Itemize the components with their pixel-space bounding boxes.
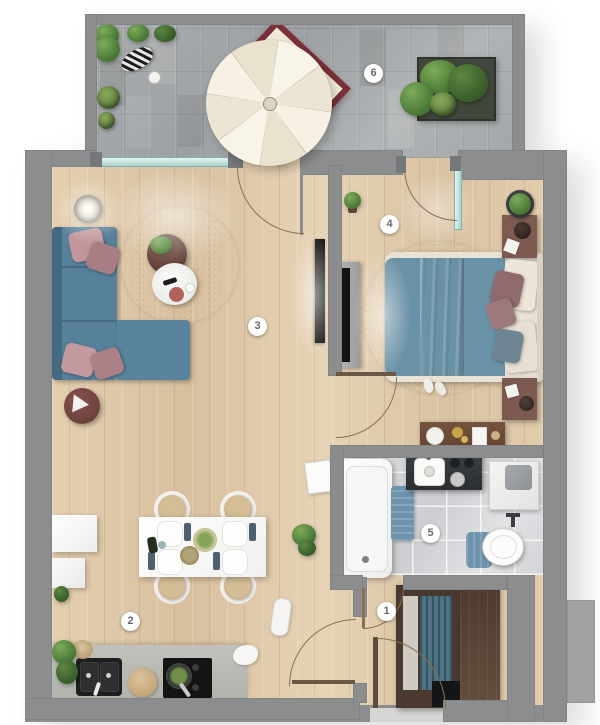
room-label-terrace: 6 (364, 64, 383, 83)
burner (192, 684, 199, 691)
sink-drain (86, 673, 91, 678)
decor-ball (148, 71, 161, 84)
planter-foliage (400, 82, 434, 116)
white-cabinet (52, 515, 97, 552)
wall-bottom-right-stub (443, 700, 510, 722)
floor-lamp (74, 195, 102, 223)
wall-right (543, 150, 567, 722)
vanity-accessory (464, 458, 474, 468)
napkin (213, 552, 220, 570)
paver-tile (126, 96, 152, 148)
bed-throw-runner (420, 258, 464, 376)
flush-pipe (511, 513, 515, 527)
bed-pillow-blue (491, 328, 524, 364)
kitchen-plant-small (54, 586, 69, 602)
plate (222, 521, 248, 547)
room-label-entrance-hall: 1 (377, 602, 396, 621)
paver-tile (438, 22, 464, 56)
terrace-wall-right (512, 14, 525, 154)
serving-bowl (180, 546, 199, 565)
room-label-bathroom: 5 (421, 524, 440, 543)
napkin (184, 523, 191, 541)
napkin (148, 552, 155, 570)
cutting-board (128, 668, 157, 697)
plate (157, 549, 183, 575)
wall-shaft-column (507, 575, 535, 722)
door-post (450, 156, 461, 171)
planter-foliage (430, 92, 456, 116)
terrace-plant (94, 36, 120, 62)
sink-bowl-drain (424, 466, 435, 477)
napkin (249, 523, 256, 541)
drinking-glass (158, 541, 166, 549)
bedroom-plant (509, 193, 531, 215)
decor-bowl (169, 287, 184, 302)
bench-card (472, 427, 487, 446)
kitchen-plant (56, 660, 78, 684)
sofa-seam (62, 320, 117, 322)
wall-bathroom-left (330, 445, 344, 588)
dark-wood-panel (460, 588, 500, 702)
door-post (396, 156, 406, 173)
basket (73, 640, 93, 659)
washing-machine-lid (505, 465, 532, 490)
sofa-backrest (52, 227, 62, 380)
terrace-plant (127, 24, 149, 42)
wall-left (25, 150, 52, 720)
coffee-table-plant (150, 236, 172, 254)
bench-plate (426, 427, 444, 445)
wall-top-mid (300, 150, 403, 175)
bench-gold-dish-small (461, 436, 468, 443)
nightstand-bowl (519, 396, 534, 411)
wall-bathroom-bottom-right (403, 575, 507, 590)
living-room-window (97, 157, 232, 167)
wall-bathroom-bottom-left (330, 575, 363, 590)
coffee-cup (185, 283, 195, 293)
terrace-wall-top (85, 14, 525, 25)
wall-bathroom-top (330, 445, 543, 458)
paver-tile (178, 95, 204, 147)
terrace-wall-left (85, 14, 97, 154)
terrace-moss-ball-pot (98, 112, 115, 129)
window-post (90, 152, 102, 167)
floor-plan: 1 2 3 4 5 6 (0, 0, 600, 725)
parasol-pole (263, 97, 277, 111)
terrace-plant (154, 25, 176, 42)
wall-hall-lower (353, 683, 367, 703)
bedroom-plant-small (344, 192, 361, 209)
wall-bottom (25, 698, 360, 720)
nightstand-vase (514, 222, 531, 239)
bath-mat (391, 486, 414, 541)
tv-bedroom (341, 268, 350, 362)
burner (192, 664, 199, 671)
tub-drain (362, 556, 369, 563)
room-label-living-room: 3 (248, 317, 267, 336)
planter-foliage (448, 64, 488, 102)
sofa-chaise-section (117, 320, 190, 380)
floor-plant (298, 540, 316, 556)
bench-candle (491, 431, 500, 440)
room-label-kitchen-dining: 2 (121, 612, 140, 631)
adjacent-structure (567, 600, 595, 703)
toilet-seat-ring (490, 535, 517, 559)
wall-divider-living-bedroom (328, 165, 342, 376)
bedroom-door-panel (336, 372, 396, 376)
room-label-bedroom: 4 (380, 215, 399, 234)
vanity-dish (450, 472, 465, 487)
plate (222, 549, 248, 575)
terrace-moss-ball-pot (97, 86, 120, 109)
vanity-accessory (450, 458, 460, 468)
tv-living-room (315, 239, 325, 343)
sink-drain (106, 673, 111, 678)
decor-sail-sculpture (72, 394, 90, 413)
white-cabinet-small (52, 558, 85, 588)
entry-threshold (370, 708, 444, 722)
